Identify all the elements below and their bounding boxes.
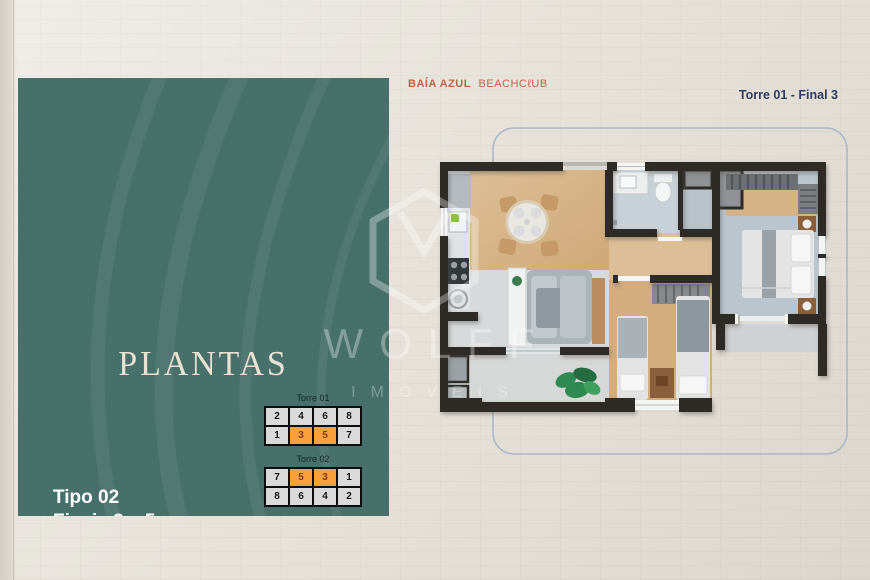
bedroom2-door: [618, 276, 650, 281]
brand-logo-suffix: BEACHCℓUB: [479, 78, 548, 90]
master-door: [740, 316, 785, 321]
duct-shaft: [684, 170, 712, 188]
bathroom-door: [658, 237, 682, 241]
watermark-subtitle: IMÓVEIS: [351, 382, 523, 401]
watermark-name: WOLFF: [324, 320, 551, 367]
stove: [448, 258, 469, 284]
console-table: [592, 278, 605, 344]
tower-final-label: Torre 01 - Final 3: [739, 88, 838, 102]
brand-logo: BAÍA AZUL BEACHCℓUB: [408, 78, 548, 90]
toilet: [654, 174, 672, 182]
brand-logo-name: BAÍA AZUL: [408, 78, 471, 90]
entry-door: [563, 166, 607, 170]
